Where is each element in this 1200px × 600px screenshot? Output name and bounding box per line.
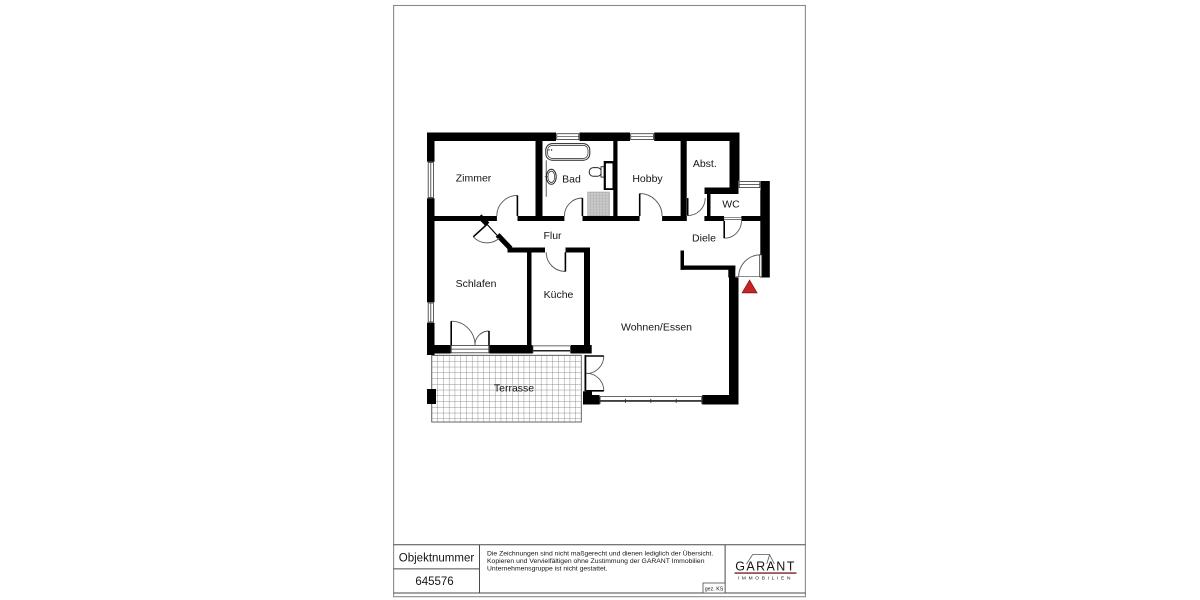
svg-text:645576: 645576: [415, 576, 453, 588]
svg-text:WC: WC: [722, 199, 740, 211]
svg-text:Die Zeichnungen sind nicht maß: Die Zeichnungen sind nicht maßgerecht un…: [487, 550, 713, 558]
svg-text:Zimmer: Zimmer: [456, 173, 492, 185]
svg-text:gez. KS: gez. KS: [705, 586, 724, 592]
svg-text:Wohnen/Essen: Wohnen/Essen: [621, 322, 692, 334]
svg-text:Unternehmensgruppe ist nicht g: Unternehmensgruppe ist nicht gestattet.: [487, 566, 608, 573]
svg-text:Terrasse: Terrasse: [494, 383, 534, 395]
svg-text:Objektnummer: Objektnummer: [399, 553, 475, 565]
svg-text:Bad: Bad: [562, 174, 581, 186]
svg-text:Abst.: Abst.: [693, 158, 717, 170]
svg-text:Kopieren und Vervielfältigen o: Kopieren und Vervielfältigen ohne Zustim…: [487, 558, 705, 565]
svg-text:Diele: Diele: [692, 233, 716, 245]
svg-text:Hobby: Hobby: [632, 173, 663, 185]
svg-text:GARANT: GARANT: [735, 560, 796, 574]
svg-text:Schlafen: Schlafen: [456, 278, 497, 290]
svg-text:Flur: Flur: [543, 230, 562, 242]
svg-text:IMMOBILIEN: IMMOBILIEN: [738, 576, 793, 582]
svg-text:Küche: Küche: [544, 289, 574, 301]
